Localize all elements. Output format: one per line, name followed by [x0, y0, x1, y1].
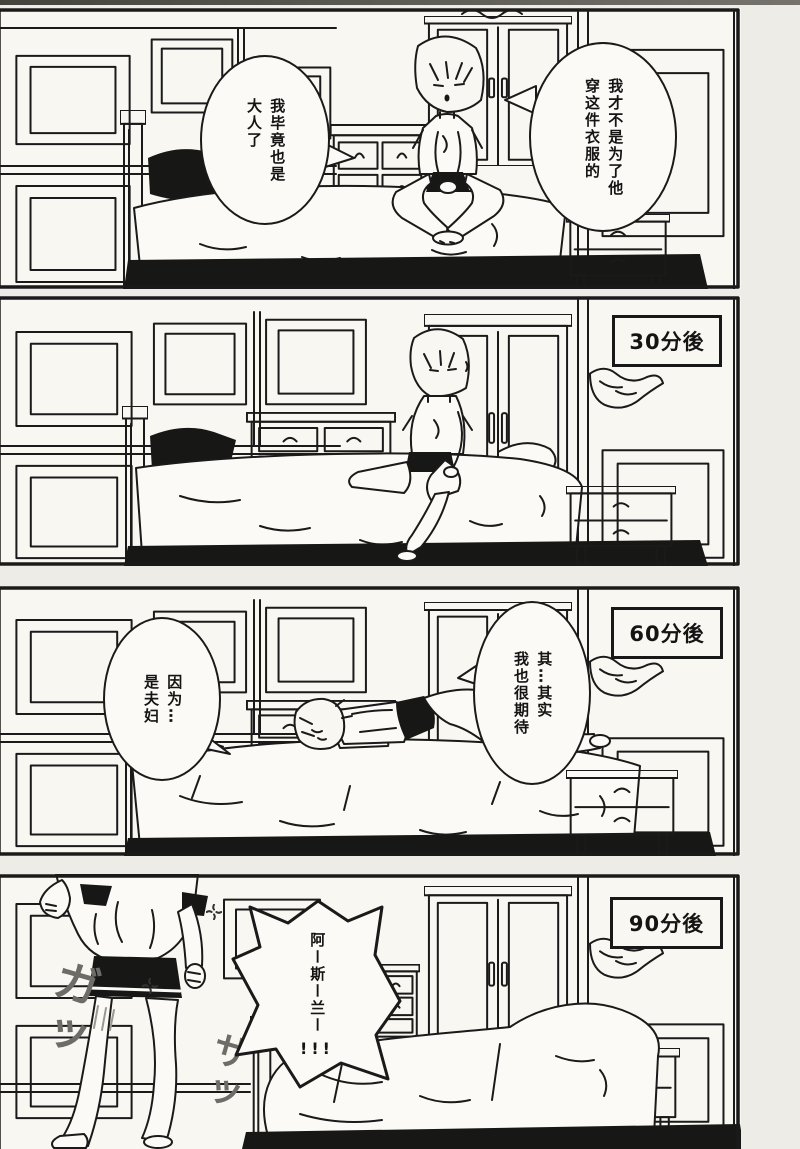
speech-bubble-adult: 我毕竟也是 大人了: [200, 55, 330, 225]
shout-text: 阿ー斯ー兰ー: [309, 932, 326, 1034]
time-label-text: 90分後: [629, 908, 704, 938]
time-label-60min: 60分後: [611, 607, 723, 659]
shout-bubble-aslan: 阿ー斯ー兰ー !!!: [228, 897, 406, 1092]
speech-text: 我毕竟也是 大人了: [242, 98, 289, 183]
shout-exclamation: !!!: [300, 1039, 334, 1058]
curtain-swag: [590, 369, 663, 408]
speech-bubble-not-for-him: 我才不是为了他 穿这件衣服的: [529, 42, 677, 232]
curtain-swag: [590, 657, 663, 696]
time-label-text: 60分後: [629, 618, 704, 648]
anger-mark: [207, 905, 221, 919]
scan-edge-artifact: [0, 0, 800, 5]
time-label-90min: 90分後: [610, 897, 723, 949]
shout-text-group: 阿ー斯ー兰ー !!!: [228, 897, 406, 1092]
manga-page: 我毕竟也是 大人了 我才不是为了他 穿这件衣服的 因为… 是夫妇 其…其实 我也…: [0, 0, 800, 1149]
speech-bubble-married: 因为… 是夫妇: [103, 617, 221, 781]
time-label-30min: 30分後: [612, 315, 722, 367]
time-label-text: 30分後: [629, 326, 704, 356]
speech-text: 其…其实 我也很期待: [509, 651, 556, 736]
speech-bubble-looking-forward: 其…其实 我也很期待: [473, 601, 591, 785]
speech-text: 我才不是为了他 穿这件衣服的: [580, 78, 627, 197]
speech-text: 因为… 是夫妇: [139, 674, 186, 725]
